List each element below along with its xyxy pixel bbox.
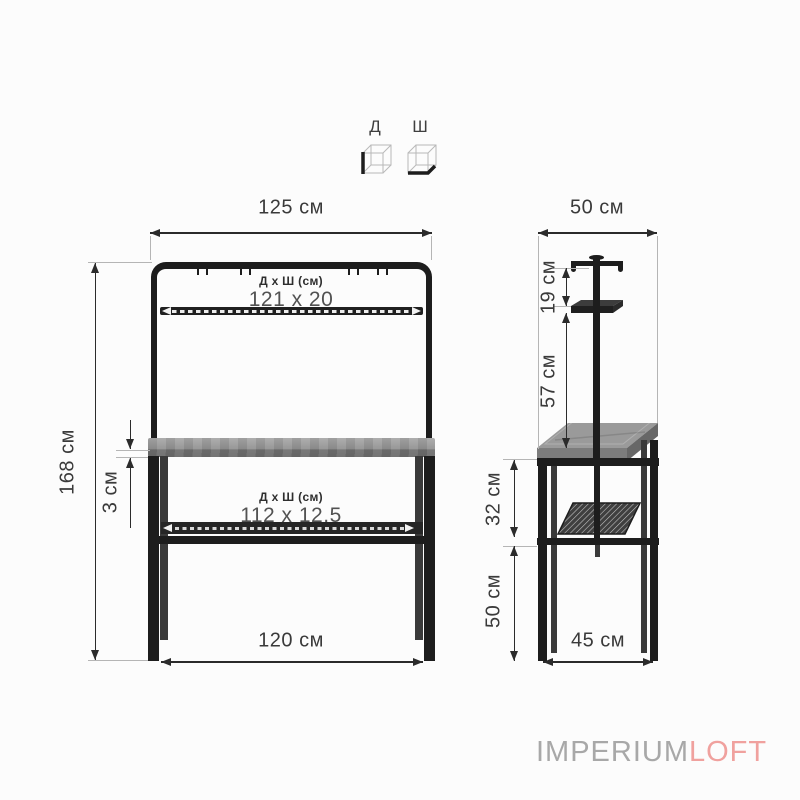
tabletop-wood-grain [148, 438, 435, 457]
front-height-label: 168 см [57, 429, 80, 495]
front-right-leg [424, 456, 435, 661]
arrow-left-icon [150, 229, 160, 237]
shelf-spec-title: Д х Ш (см) [259, 490, 323, 504]
arrow-down-icon [510, 527, 518, 537]
front-tabletop [148, 438, 435, 457]
side-top-frame-bar [537, 458, 659, 466]
arrow-up-icon [510, 546, 518, 556]
side-bottom-depth-label: 45 см [571, 630, 625, 653]
arrow-left-icon [161, 658, 171, 666]
arrow-left-icon [543, 658, 553, 666]
rail-hook [386, 269, 388, 275]
rack-height-dimension-line [566, 313, 568, 448]
side-back-leg [551, 458, 557, 653]
arrow-down-icon [126, 439, 134, 449]
arrow-down-icon [91, 650, 99, 660]
dimension-diagram: Д Ш [0, 0, 800, 800]
mesh-shelf-dashes [175, 527, 409, 530]
front-shelf-frame-bar [151, 536, 433, 544]
front-back-leg [415, 456, 423, 640]
front-bottom-dimension-line [161, 661, 423, 663]
front-top-dimension-line [150, 232, 432, 234]
brand-accent-text: LOFT [689, 736, 767, 768]
rail-hook [206, 269, 208, 275]
thickness-dimension-line [130, 458, 132, 528]
arrow-right-icon [413, 658, 423, 666]
arrow-up-icon [91, 263, 99, 273]
side-center-post-stub [595, 545, 600, 557]
hanger-offset-label: 19 см [538, 260, 561, 314]
front-mesh-shelf [161, 522, 423, 534]
tabletop-thickness-label: 3 см [100, 471, 123, 513]
extension-line [88, 660, 150, 661]
arrow-down-icon [562, 438, 570, 448]
hanger-bracket [571, 261, 623, 266]
white-arrow-left-icon [163, 524, 172, 532]
side-back-leg [641, 440, 647, 653]
side-mid-frame-bar [537, 538, 659, 545]
white-arrow-right-icon [412, 307, 421, 315]
rail-bar-dashes [172, 310, 411, 313]
arrow-up-icon [562, 268, 570, 278]
side-front-leg [650, 440, 658, 661]
rail-hook [197, 269, 199, 275]
extension-line [431, 236, 432, 260]
front-rail-bar [160, 307, 423, 315]
white-arrow-right-icon [405, 524, 414, 532]
extension-line [150, 236, 151, 260]
rail-hook [348, 269, 350, 275]
side-bottom-dimension-line [543, 661, 653, 663]
table-to-shelf-label: 32 см [483, 472, 506, 526]
front-height-dimension-line [95, 263, 97, 660]
rail-spec-title: Д х Ш (см) [259, 274, 323, 288]
arrow-down-icon [562, 296, 570, 306]
side-top-depth-label: 50 см [570, 197, 624, 220]
front-top-width-label: 125 см [258, 197, 324, 220]
rail-hook [357, 269, 359, 275]
rail-hook [249, 269, 251, 275]
front-back-leg [160, 456, 168, 640]
shelf-to-floor-label: 50 см [483, 574, 506, 628]
arrow-down-icon [510, 651, 518, 661]
extension-line [657, 236, 658, 423]
side-front-leg [538, 458, 547, 661]
shelf-to-floor-dimension-line [514, 546, 516, 661]
rack-height-label: 57 см [538, 354, 561, 408]
table-to-shelf-dimension-line [514, 460, 516, 537]
white-arrow-left-icon [162, 307, 171, 315]
arrow-up-icon [126, 458, 134, 468]
hanger-post [593, 259, 600, 461]
side-center-post [594, 466, 600, 538]
arrow-left-icon [538, 229, 548, 237]
arrow-up-icon [562, 313, 570, 323]
arrow-right-icon [643, 658, 653, 666]
arrow-right-icon [647, 229, 657, 237]
hanger-post-cap [589, 255, 604, 260]
hanger-bracket-hook [571, 261, 576, 272]
brand-logo: IMPERIUMLOFT [536, 736, 767, 769]
hanger-bracket-hook [618, 261, 623, 272]
arrow-up-icon [510, 460, 518, 470]
brand-gray-text: IMPERIUM [536, 736, 689, 768]
rail-hook [377, 269, 379, 275]
extension-line [116, 450, 150, 451]
front-left-leg [148, 456, 159, 661]
extension-line [503, 459, 537, 460]
front-bottom-width-label: 120 см [258, 630, 324, 653]
side-top-dimension-line [538, 232, 657, 234]
extension-line [503, 546, 537, 547]
rail-hook [240, 269, 242, 275]
